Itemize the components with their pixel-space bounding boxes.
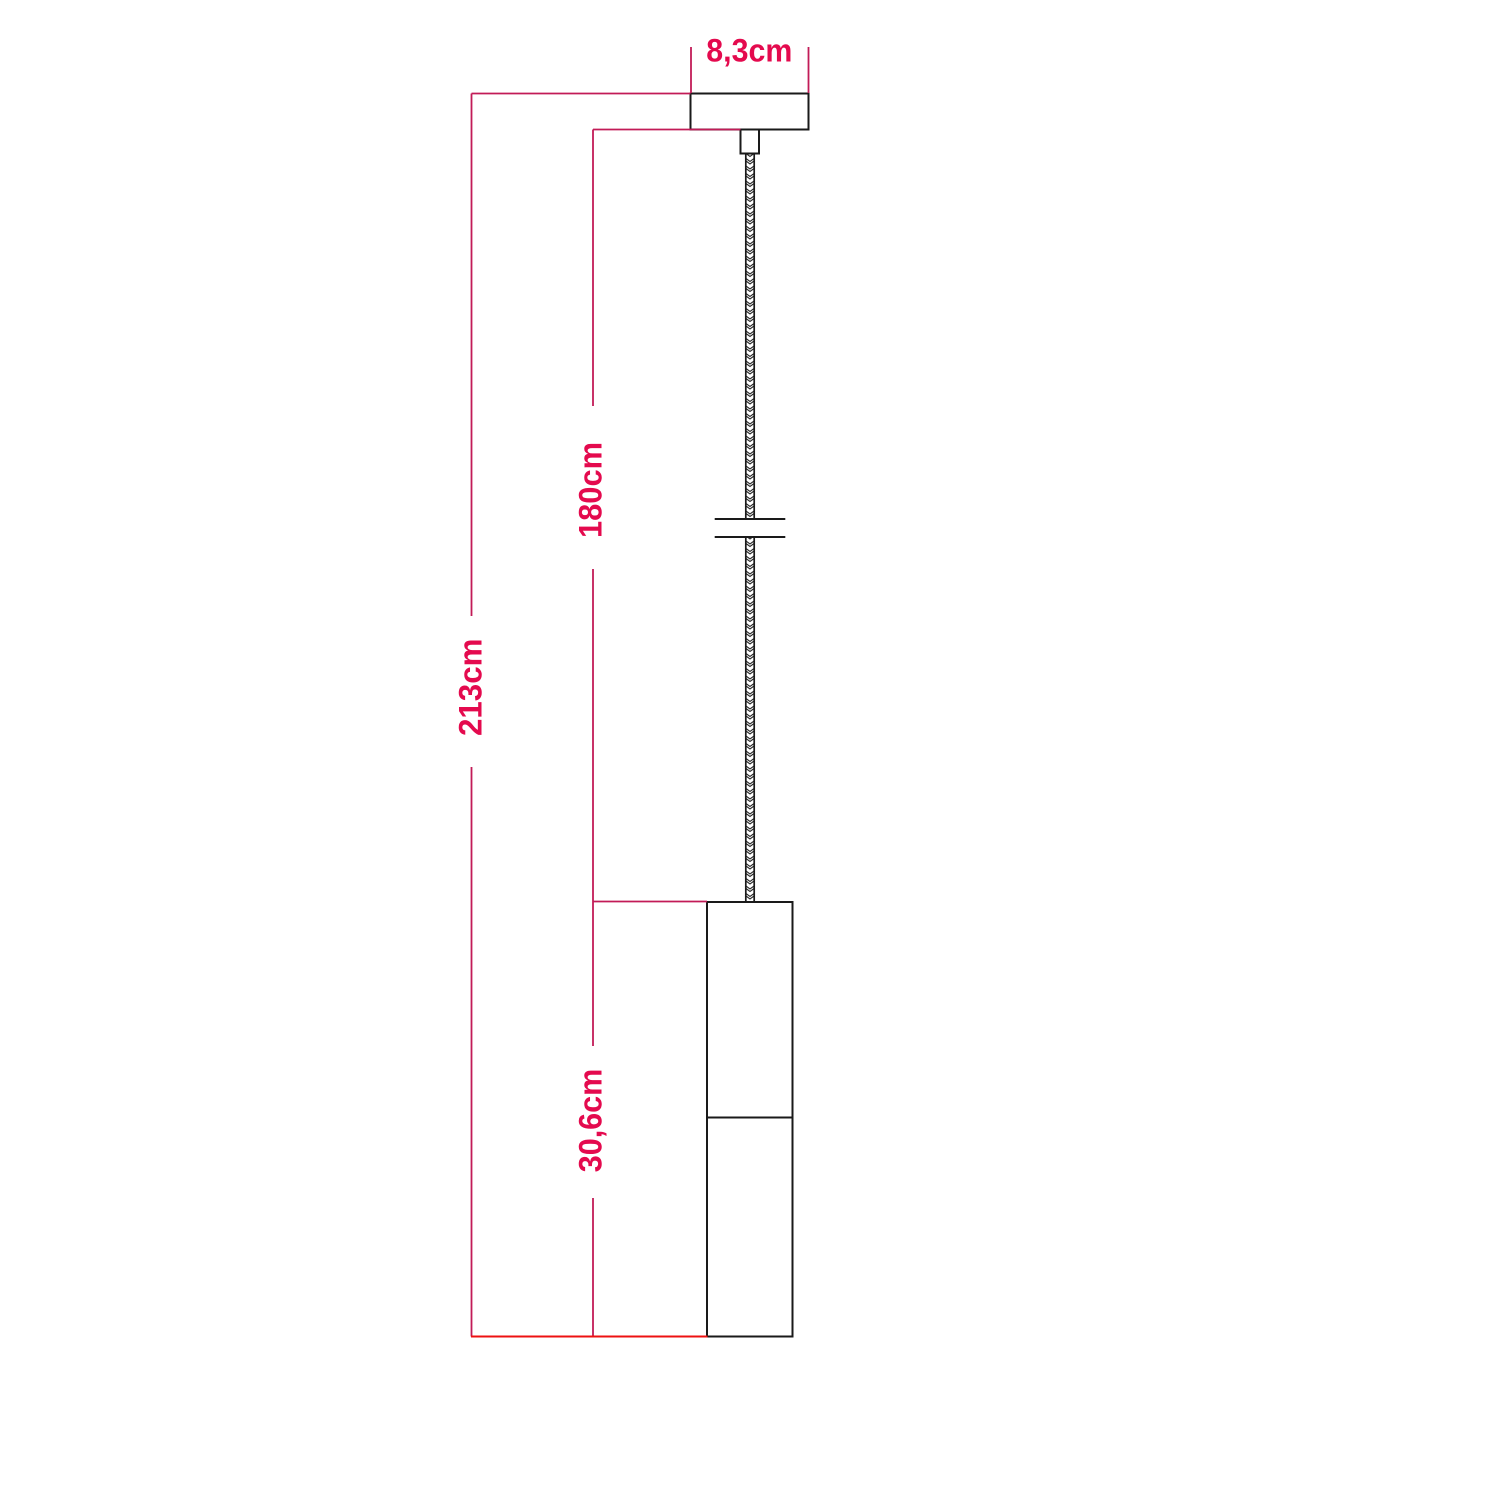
svg-text:8,3cm: 8,3cm xyxy=(706,32,792,68)
svg-text:30,6cm: 30,6cm xyxy=(572,1069,609,1173)
svg-text:213cm: 213cm xyxy=(452,639,489,737)
svg-text:180cm: 180cm xyxy=(572,442,609,538)
